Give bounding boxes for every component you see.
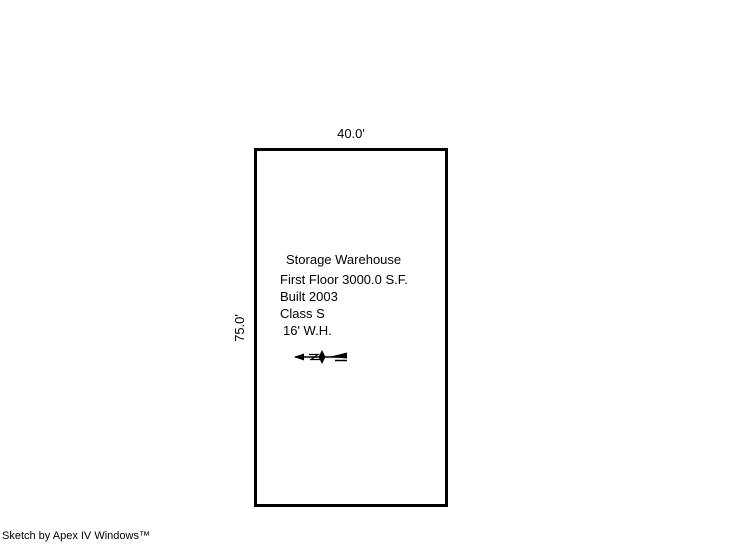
building-label-name: Storage Warehouse [280,251,408,268]
dimension-label-width: 40.0' [254,126,448,142]
building-label-area: First Floor 3000.0 S.F. [280,271,408,288]
dimension-label-height: 75.0' [232,314,248,342]
building-label-block: Storage Warehouse First Floor 3000.0 S.F… [280,251,408,339]
sketch-canvas: 40.0' 75.0' Storage Warehouse First Floo… [0,0,746,547]
app-credit: Sketch by Apex IV Windows™ [2,529,150,543]
building-label-year-built: Built 2003 [280,288,408,305]
building-label-class: Class S [280,305,408,322]
north-arrow-icon [292,349,348,365]
building-label-wall-height: 16' W.H. [280,322,408,339]
